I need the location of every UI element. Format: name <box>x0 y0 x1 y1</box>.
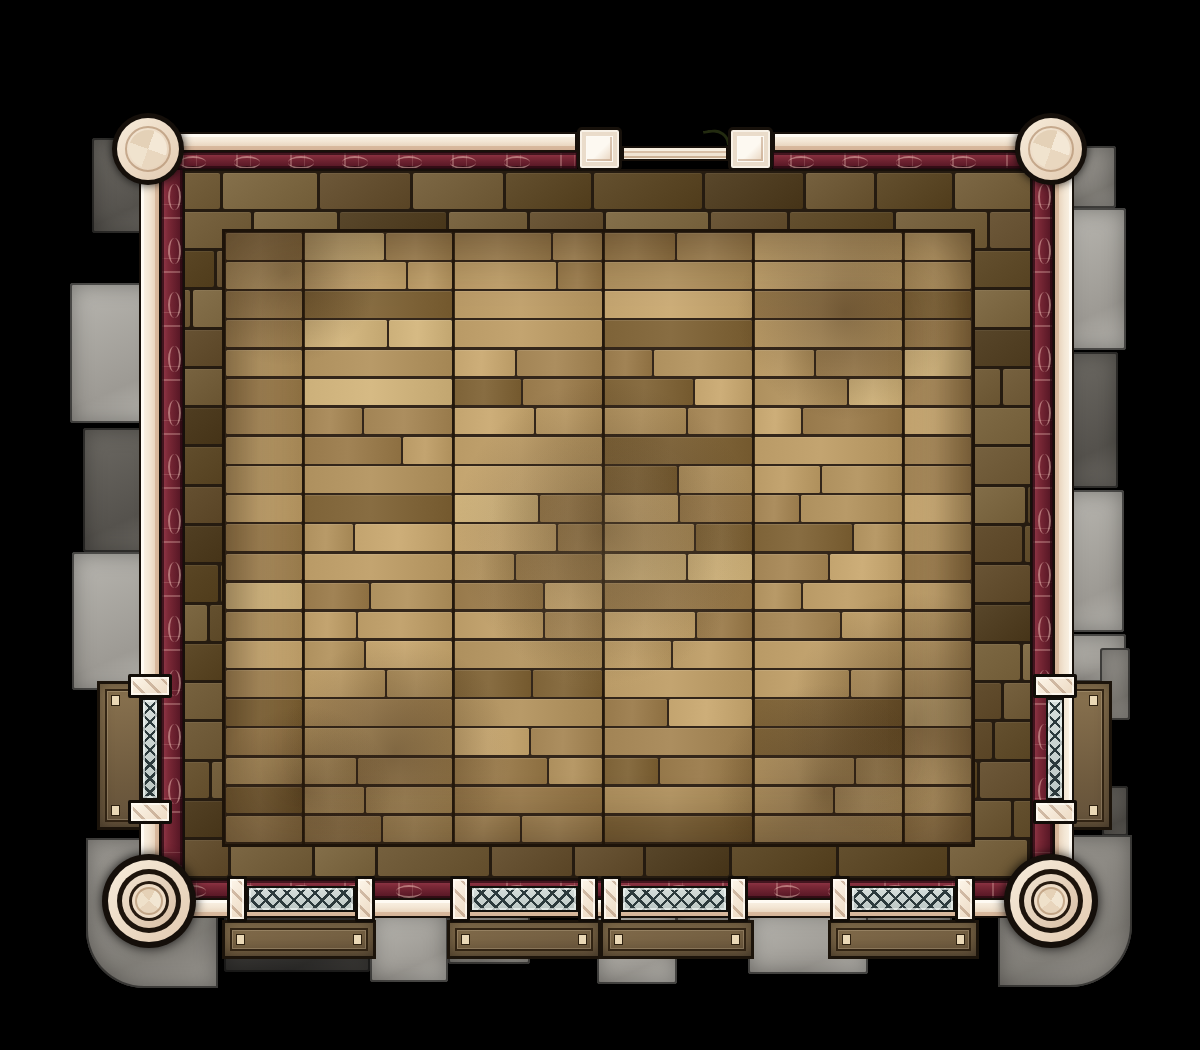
platform-peg <box>956 934 965 945</box>
trim-flourish <box>774 885 800 898</box>
brick <box>1014 801 1032 837</box>
railing-post <box>1033 800 1077 824</box>
railing-lattice <box>141 698 159 800</box>
brick <box>320 173 410 209</box>
brick <box>1004 683 1032 719</box>
wall-band <box>773 132 1054 152</box>
platform-frame <box>608 928 746 951</box>
platform-frame <box>836 928 971 951</box>
trim-flourish <box>168 184 181 210</box>
brick <box>1025 526 1032 562</box>
brick <box>705 173 803 209</box>
railing-post <box>830 876 850 922</box>
brick <box>413 173 503 209</box>
brick <box>1003 369 1032 405</box>
platform-peg <box>1089 695 1098 706</box>
railing-post <box>450 876 470 922</box>
ornate-trim <box>165 152 577 169</box>
brick <box>990 212 1032 248</box>
trim-flourish <box>1038 616 1051 642</box>
battle-map-canvas[interactable] <box>0 0 1200 1050</box>
door-post-inset <box>737 136 764 162</box>
brick <box>955 173 1032 209</box>
brick <box>183 290 190 326</box>
trim-flourish <box>950 156 976 169</box>
brick <box>183 762 209 798</box>
railing-lattice <box>1046 698 1064 800</box>
trim-flourish <box>168 238 181 264</box>
railing-lattice <box>621 886 728 912</box>
railing-post <box>128 674 172 698</box>
railing-lattice <box>850 886 955 912</box>
ornate-trim <box>773 152 1032 169</box>
trim-flourish <box>504 156 530 169</box>
brick <box>1023 644 1032 680</box>
platform-peg <box>614 934 623 945</box>
pillar-core-ring <box>1037 887 1065 915</box>
trim-flourish <box>1038 292 1051 318</box>
trim-flourish <box>168 562 181 588</box>
platform-peg <box>236 934 245 945</box>
wood-floor <box>222 229 975 847</box>
railing-post <box>601 876 621 922</box>
brick <box>183 565 218 601</box>
trim-flourish <box>1038 508 1051 534</box>
balcony-platform <box>222 920 376 959</box>
platform-peg <box>578 934 587 945</box>
door-post <box>728 127 773 171</box>
trim-flourish <box>788 156 814 169</box>
trim-flourish <box>168 346 181 372</box>
platform-peg <box>1089 805 1098 816</box>
platform-peg <box>111 805 120 816</box>
trim-flourish <box>168 292 181 318</box>
brick <box>974 251 1032 287</box>
brick <box>183 408 223 444</box>
trim-flourish <box>896 156 922 169</box>
trim-flourish <box>842 156 868 169</box>
door-handle-curl <box>703 127 730 148</box>
platform-frame <box>455 928 593 951</box>
balcony-platform <box>828 920 979 959</box>
trim-flourish <box>1038 562 1051 588</box>
floor-shading <box>225 232 972 844</box>
brick <box>594 173 702 209</box>
pillar-core-ring <box>135 887 163 915</box>
trim-flourish <box>342 156 368 169</box>
railing-post <box>578 876 598 922</box>
trim-flourish <box>1038 184 1051 210</box>
brick <box>971 290 1030 326</box>
ornate-trim <box>161 169 183 884</box>
railing-post <box>227 876 247 922</box>
railing-post <box>1033 674 1077 698</box>
brick <box>877 173 952 209</box>
railing-post <box>955 876 975 922</box>
brick <box>806 173 874 209</box>
brick <box>972 605 1032 641</box>
balcony-platform <box>447 920 601 959</box>
stone-block <box>370 912 448 982</box>
brick <box>183 840 228 876</box>
brick <box>980 762 1032 798</box>
trim-flourish <box>168 616 181 642</box>
platform-frame <box>230 928 368 951</box>
trim-flourish <box>180 156 206 169</box>
platform-peg <box>111 695 120 706</box>
railing-post <box>728 876 748 922</box>
platform-peg <box>731 934 740 945</box>
brick <box>183 487 223 523</box>
trim-flourish <box>1038 346 1051 372</box>
brick <box>223 173 316 209</box>
trim-flourish <box>1038 238 1051 264</box>
balcony-platform <box>600 920 754 959</box>
trim-flourish <box>234 156 260 169</box>
trim-flourish <box>450 156 476 169</box>
trim-flourish <box>288 156 314 169</box>
platform-peg <box>353 934 362 945</box>
brick <box>183 369 224 405</box>
pillar-core <box>129 130 167 168</box>
brick <box>974 447 1032 483</box>
brick <box>183 251 214 287</box>
trim-flourish <box>396 885 422 898</box>
trim-flourish <box>396 156 422 169</box>
brick <box>183 644 227 680</box>
brick <box>183 173 220 209</box>
trim-flourish <box>168 400 181 426</box>
platform-peg <box>461 934 470 945</box>
brick <box>995 722 1032 758</box>
pillar-core <box>1032 130 1070 168</box>
trim-flourish <box>1038 400 1051 426</box>
door-post <box>577 127 622 171</box>
brick <box>183 605 207 641</box>
trim-flourish <box>168 454 181 480</box>
railing-post <box>128 800 172 824</box>
door-threshold-bar <box>622 146 728 161</box>
trim-flourish <box>1038 454 1051 480</box>
platform-peg <box>842 934 851 945</box>
wall-band <box>147 132 577 152</box>
railing-lattice <box>247 886 355 912</box>
trim-flourish <box>168 508 181 534</box>
door-post-inset <box>586 136 613 162</box>
brick <box>506 173 591 209</box>
trim-flourish <box>168 724 181 750</box>
railing-post <box>355 876 375 922</box>
railing-lattice <box>470 886 578 912</box>
